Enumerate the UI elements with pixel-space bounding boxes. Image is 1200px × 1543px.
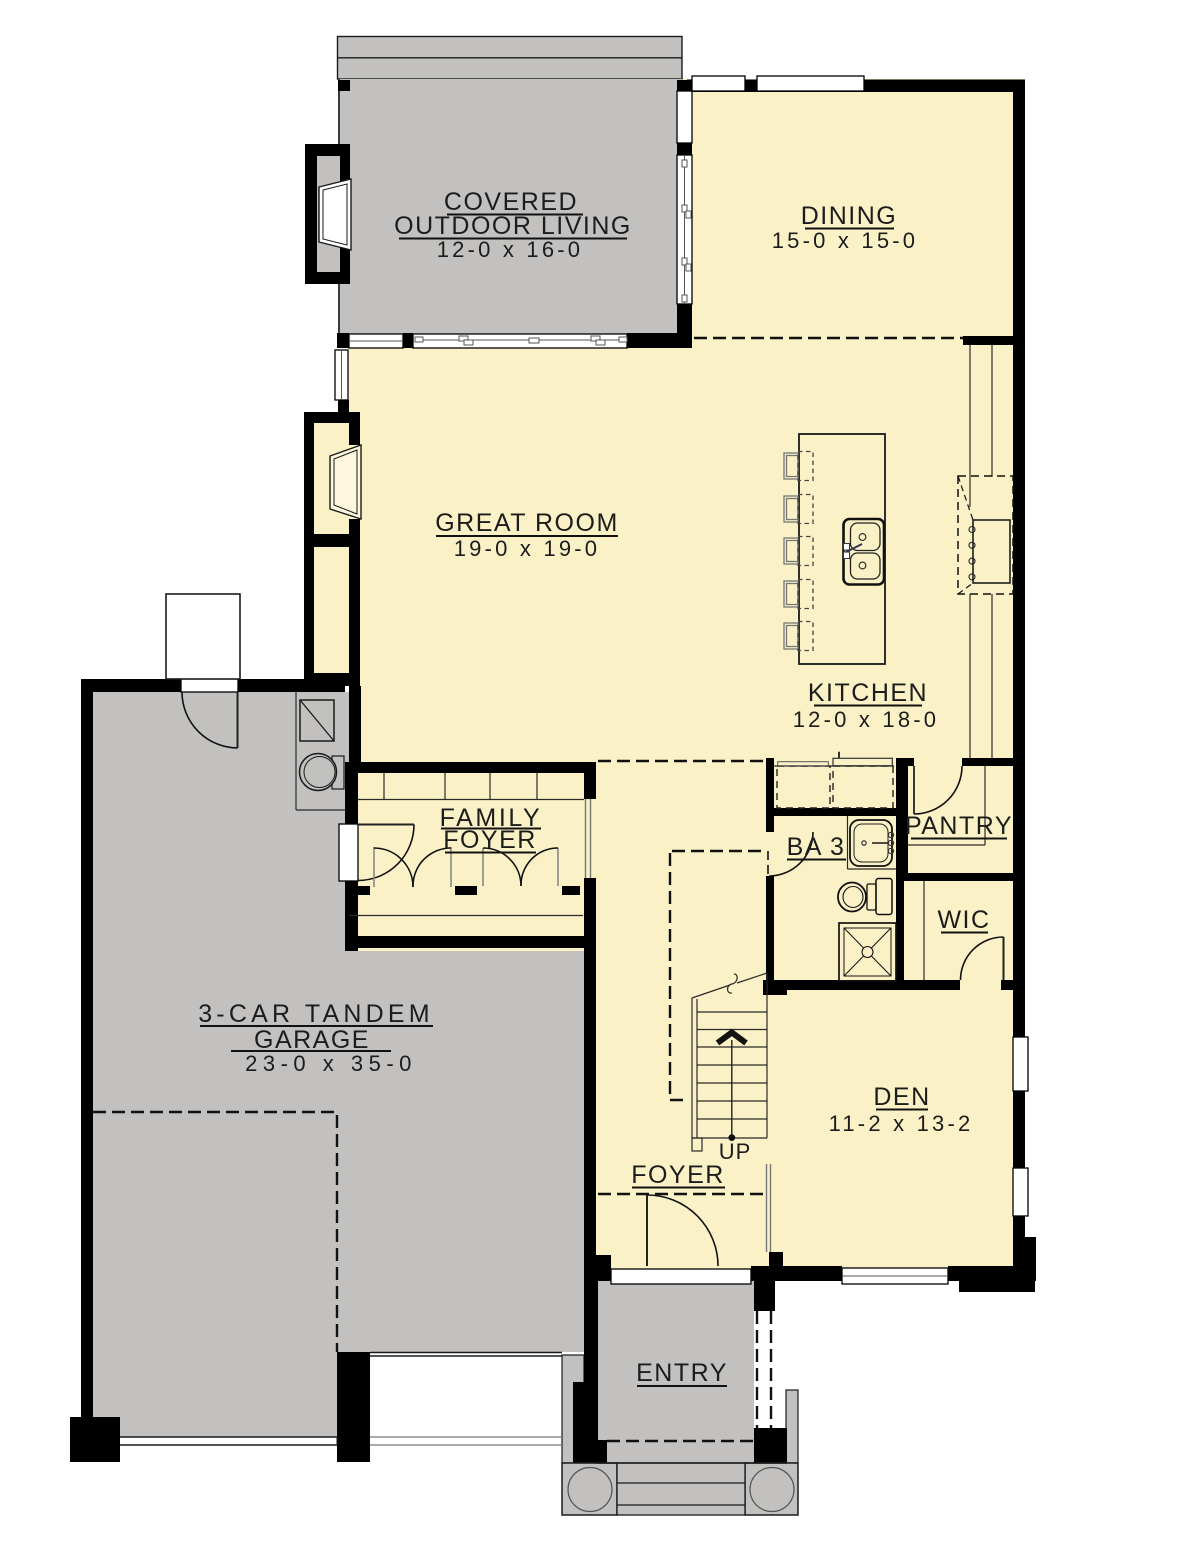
svg-text:PANTRY: PANTRY: [905, 812, 1013, 840]
svg-text:DINING: DINING: [801, 202, 898, 230]
svg-text:12-0 x 18-0: 12-0 x 18-0: [793, 707, 940, 732]
svg-text:WIC: WIC: [937, 906, 990, 934]
svg-text:ENTRY: ENTRY: [636, 1359, 728, 1387]
svg-text:KITCHEN: KITCHEN: [808, 679, 928, 707]
svg-text:3-CAR TANDEM: 3-CAR TANDEM: [198, 1000, 434, 1028]
svg-text:19-0 x 19-0: 19-0 x 19-0: [454, 536, 601, 561]
svg-text:UP: UP: [719, 1139, 752, 1164]
svg-text:GARAGE: GARAGE: [254, 1026, 370, 1054]
svg-text:15-0 x 15-0: 15-0 x 15-0: [772, 228, 919, 253]
svg-text:12-0 x 16-0: 12-0 x 16-0: [437, 237, 584, 262]
svg-text:FOYER: FOYER: [631, 1161, 725, 1189]
svg-text:FOYER: FOYER: [443, 826, 537, 854]
svg-text:23-0 x 35-0: 23-0 x 35-0: [245, 1051, 417, 1076]
svg-text:DEN: DEN: [873, 1083, 930, 1111]
svg-text:OUTDOOR LIVING: OUTDOOR LIVING: [394, 212, 632, 240]
svg-text:BA 3: BA 3: [787, 833, 846, 861]
svg-text:11-2 x 13-2: 11-2 x 13-2: [829, 1111, 974, 1136]
svg-text:GREAT ROOM: GREAT ROOM: [435, 509, 619, 537]
